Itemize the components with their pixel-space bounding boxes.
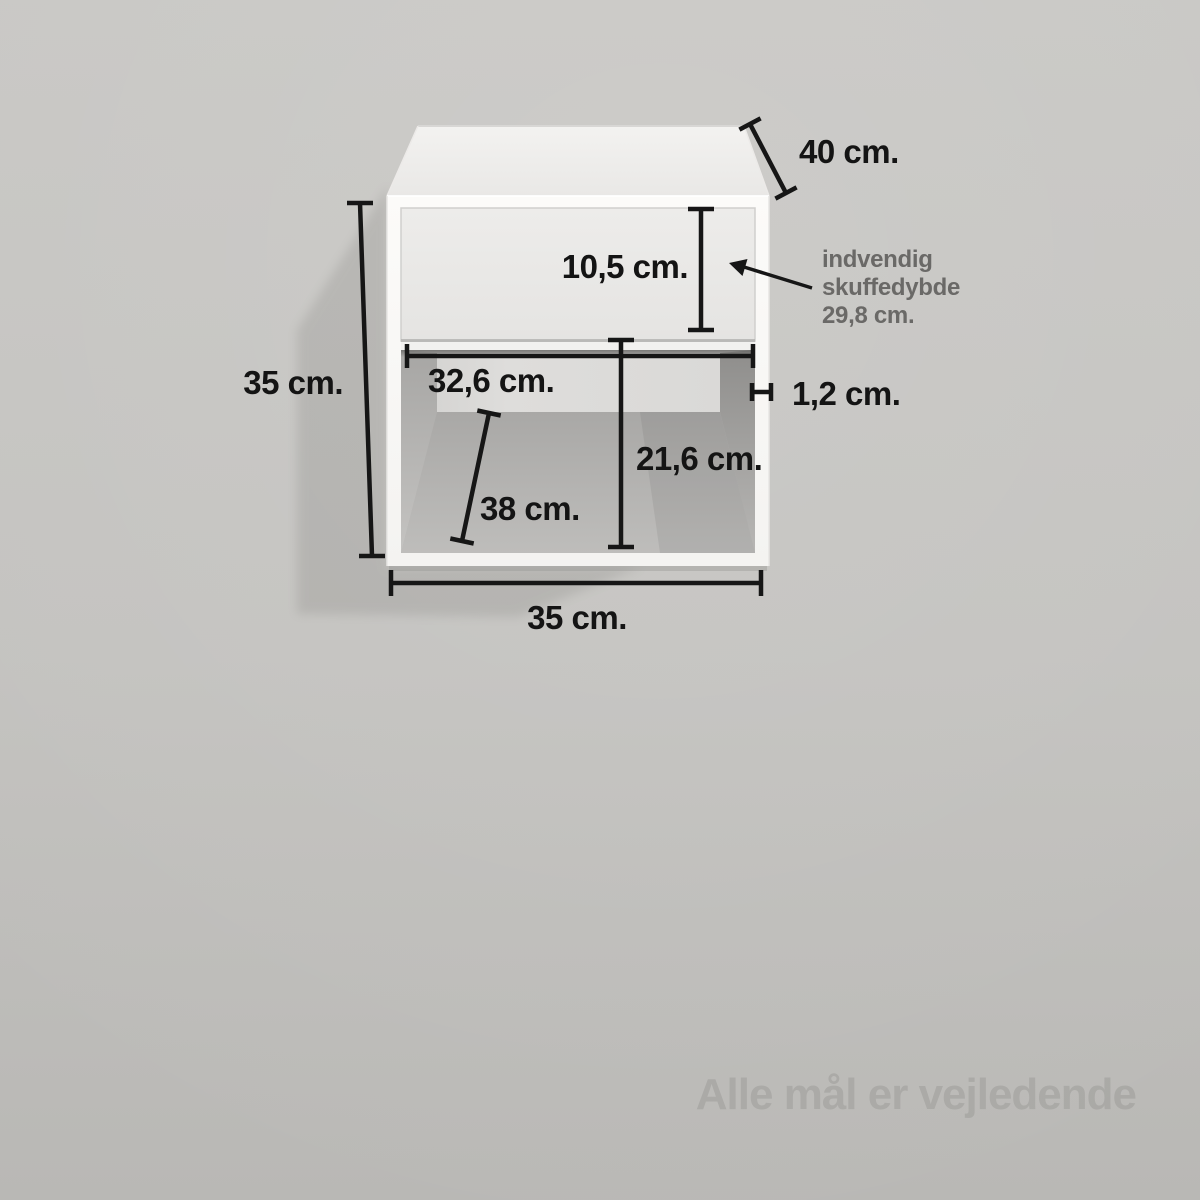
dim-height-label: 35 cm. [243,364,343,401]
dim-inner-depth-label: 38 cm. [480,490,580,527]
product-dimension-image: 40 cm. 10,5 cm. 35 cm. 32,6 cm. 1,2 cm. … [0,0,1200,1200]
watermark-text: Alle mål er vejledende [696,1070,1136,1119]
note-line-2: skuffedybde [822,274,960,301]
cabinet-bottom-edge-shadow [389,566,767,571]
dim-depth-label: 40 cm. [799,133,899,170]
drawer-gap-line [401,339,755,342]
dim-width-label: 35 cm. [527,599,627,636]
dim-inner-height-label: 21,6 cm. [636,440,762,477]
note-line-1: indvendig [822,246,933,273]
dim-panel-thickness-label: 1,2 cm. [792,375,900,412]
dim-drawer-front-height-label: 10,5 cm. [562,248,688,285]
dimension-diagram-svg: 40 cm. 10,5 cm. 35 cm. 32,6 cm. 1,2 cm. … [0,0,1200,1200]
dim-inner-width-label: 32,6 cm. [428,362,554,399]
shelf-front-edge [401,342,755,350]
note-line-3: 29,8 cm. [822,302,914,329]
cabinet-top-face [387,126,769,196]
